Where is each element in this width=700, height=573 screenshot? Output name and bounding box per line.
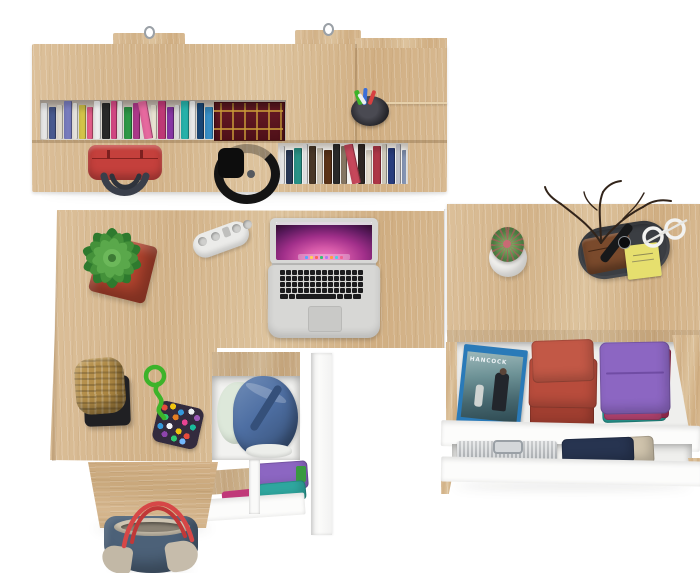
key [358, 288, 363, 293]
laptop-menubar [276, 222, 372, 225]
book-spine [79, 105, 86, 139]
pedestal-drawer-divider [249, 460, 260, 514]
key [328, 276, 333, 281]
key [310, 288, 315, 293]
key [298, 282, 303, 287]
power-strip-socket [211, 232, 220, 241]
key [322, 282, 327, 287]
key [352, 276, 357, 281]
key [289, 294, 295, 299]
book-spine [175, 105, 180, 139]
white-cloth [246, 444, 292, 458]
book-spine [294, 148, 302, 184]
bluray-figure-small [474, 384, 484, 407]
key [346, 270, 351, 275]
antique-book-gold-band [214, 110, 283, 112]
shelf-lower-book-row [280, 144, 406, 184]
key [280, 294, 288, 299]
key [310, 270, 315, 275]
right-drawer2-front [441, 456, 700, 486]
book-spine [158, 101, 166, 139]
key [310, 282, 315, 287]
key [322, 276, 327, 281]
tote-bag-opening [121, 522, 183, 532]
watch-face [618, 236, 631, 249]
spacebar-key [296, 294, 336, 299]
key [344, 294, 352, 299]
shelf-upper-book-row [41, 101, 213, 139]
key [322, 270, 327, 275]
scene: HANCOCK [0, 0, 700, 573]
handbag-clasp [107, 150, 110, 159]
dock-icon [315, 256, 318, 259]
key [292, 270, 297, 275]
wall-hook-icon [323, 23, 334, 36]
laptop [268, 218, 380, 338]
keyboard-row [280, 288, 369, 293]
book-spine [124, 107, 132, 139]
key [316, 276, 321, 281]
red-clothes-top [531, 339, 594, 383]
book-spine [49, 107, 56, 139]
book-spine [396, 144, 401, 184]
key [304, 282, 309, 287]
keyboard-row [280, 282, 369, 287]
dock-icon [310, 256, 313, 259]
dock-icon [335, 256, 338, 259]
key [322, 288, 327, 293]
book-spine [41, 103, 48, 139]
keyboard-row [280, 270, 369, 275]
key [292, 282, 297, 287]
headphones-hinge [247, 170, 255, 178]
key [304, 288, 309, 293]
key [346, 288, 351, 293]
key [340, 282, 345, 287]
dock-icon [305, 256, 308, 259]
book-spine [102, 103, 110, 139]
dock-icon [340, 256, 343, 259]
laptop-dock [298, 254, 350, 260]
book-spine [181, 101, 189, 139]
key [292, 276, 297, 281]
key [310, 276, 315, 281]
book-spine [286, 150, 293, 184]
key [337, 294, 343, 299]
key [358, 270, 363, 275]
book-spine [111, 101, 117, 139]
key [346, 276, 351, 281]
book-spine [303, 144, 308, 184]
key [280, 282, 285, 287]
woven-basket [73, 356, 128, 416]
key [334, 282, 339, 287]
key [352, 282, 357, 287]
book-spine [333, 144, 340, 184]
key [286, 282, 291, 287]
key [353, 294, 361, 299]
power-strip-socket [232, 224, 241, 233]
key [286, 288, 291, 293]
shirt-stack-purple [599, 341, 670, 414]
handbag-seam [92, 158, 158, 159]
key [346, 282, 351, 287]
tote-bag-corner [100, 544, 133, 573]
book-spine [118, 101, 123, 139]
key [328, 282, 333, 287]
book-spine [373, 146, 381, 184]
red-handbag [88, 145, 162, 180]
book-spine [197, 103, 204, 139]
book-spine [366, 150, 372, 184]
shelf-right-step [355, 38, 447, 48]
key [280, 288, 285, 293]
key [358, 282, 363, 287]
key [298, 288, 303, 293]
dock-icon [330, 256, 333, 259]
key [280, 276, 285, 281]
key [358, 276, 363, 281]
key [316, 288, 321, 293]
book-spine [87, 107, 93, 139]
pedestal-drawer1-front-panel [311, 353, 332, 535]
key [304, 276, 309, 281]
key [280, 270, 285, 275]
handbag-clasp [140, 150, 143, 159]
bluray-figure [492, 372, 510, 411]
book-spine [64, 101, 72, 139]
book-spine [190, 101, 196, 139]
key [328, 270, 333, 275]
key [316, 270, 321, 275]
key [298, 276, 303, 281]
laptop-keyboard [280, 270, 369, 300]
wall-hook-icon [144, 26, 155, 39]
book-spine [324, 150, 332, 184]
book-spine [388, 148, 395, 184]
book-spine [167, 107, 174, 139]
key [340, 276, 345, 281]
metal-case-handle [493, 440, 523, 454]
antique-book-block [214, 102, 285, 141]
book-spine [205, 107, 213, 139]
antique-book-gold-band [214, 128, 283, 130]
bluray-cover: HANCOCK [461, 351, 524, 422]
key [334, 288, 339, 293]
book-spine [317, 148, 323, 184]
key [286, 276, 291, 281]
key [292, 288, 297, 293]
book-spine [402, 150, 406, 184]
key [340, 270, 345, 275]
drawer-unit-top [447, 204, 700, 332]
book-spine [73, 103, 78, 139]
key [334, 270, 339, 275]
keyboard-row [280, 294, 369, 299]
laptop-trackpad [308, 306, 342, 332]
bluray-title: HANCOCK [469, 356, 507, 366]
key [352, 270, 357, 275]
cactus-crown [503, 240, 511, 248]
book-spine [309, 146, 316, 184]
book-spine [57, 105, 63, 139]
book-spine [94, 101, 101, 139]
pedestal-drawer1-back [212, 352, 300, 376]
right-drawer1-left-wall [446, 342, 457, 430]
book-spine [280, 146, 285, 184]
key [304, 270, 309, 275]
key [286, 270, 291, 275]
dock-icon [325, 256, 328, 259]
key [340, 288, 345, 293]
dock-icon [320, 256, 323, 259]
key [328, 288, 333, 293]
key [352, 288, 357, 293]
book-spine [382, 144, 387, 184]
key [316, 282, 321, 287]
key [334, 276, 339, 281]
headphones-earcup [218, 148, 244, 178]
keyboard-row [280, 276, 369, 281]
key [298, 270, 303, 275]
